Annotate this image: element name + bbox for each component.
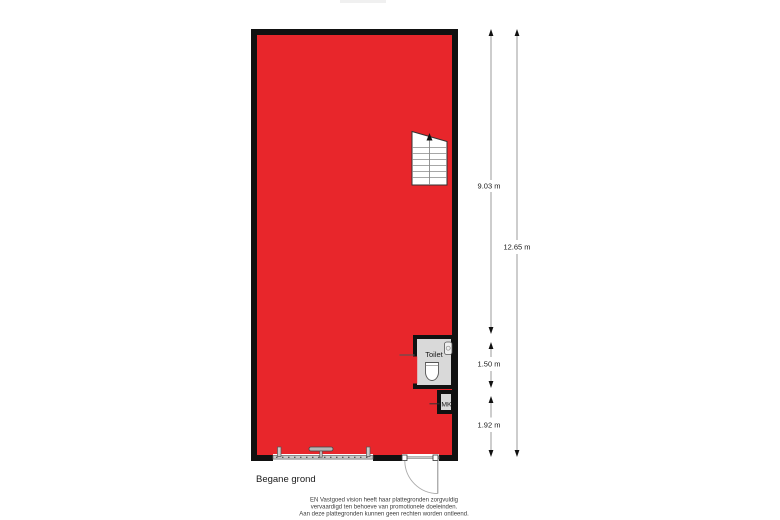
door-post-left: [402, 455, 407, 461]
disclaimer: EN Vastgoed vision heeft haar plattegron…: [299, 498, 469, 518]
floorplan-page: Toilet MK: [0, 0, 780, 520]
toilet-label: Toilet: [425, 350, 443, 359]
floor-title: Begane grond: [256, 474, 316, 485]
door-swing-arc: [405, 461, 438, 494]
window-center-mullion: [309, 447, 333, 451]
main-room: [254, 32, 455, 458]
disclaimer-line-2: vervaardigd ten behoeve van promotionele…: [311, 505, 458, 511]
disclaimer-line-1: EN Vastgoed vision heeft haar plattegron…: [310, 498, 458, 504]
dimension-total-height: 12.65 m: [503, 243, 530, 252]
stairs: [412, 132, 447, 186]
window-post-left: [278, 447, 282, 457]
disclaimer-line-3: Aan deze plattegronden kunnen geen recht…: [299, 512, 469, 518]
floorplan-canvas: Toilet MK: [0, 0, 780, 520]
entrance-door: [402, 454, 439, 494]
sink-icon: [445, 342, 453, 355]
dimension-labels: 9.03 m 12.65 m 1.50 m 1.92 m: [478, 182, 531, 430]
window-center-stem: [320, 451, 322, 457]
mk-label: MK: [441, 401, 452, 408]
toilet-door-opening: [412, 357, 417, 384]
dimension-main-height: 9.03 m: [478, 182, 501, 191]
cropped-watermark: [340, 0, 386, 3]
dimension-toilet-height: 1.50 m: [478, 360, 501, 369]
window-post-right: [367, 447, 371, 457]
door-post-right: [433, 455, 438, 461]
dimension-entry-height: 1.92 m: [478, 421, 501, 430]
